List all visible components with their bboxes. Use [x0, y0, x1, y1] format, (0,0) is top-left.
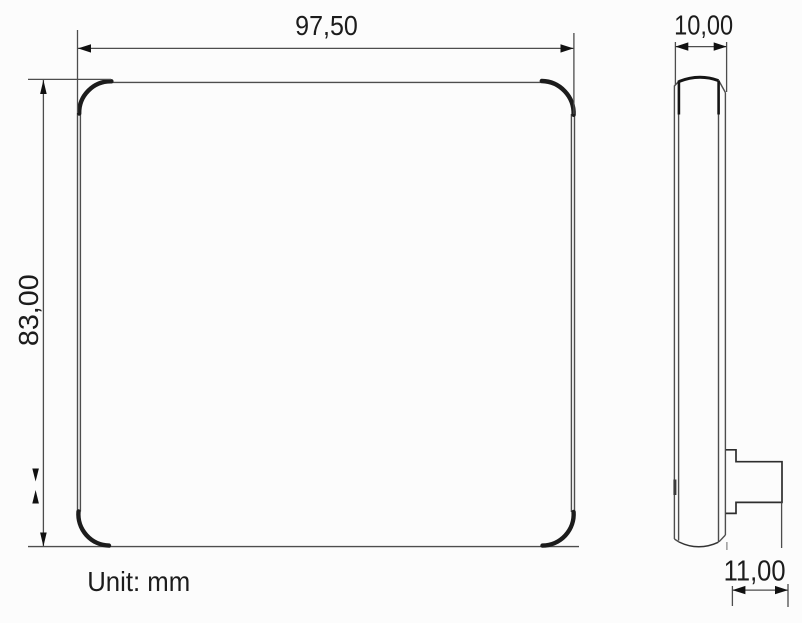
svg-text:83,00: 83,00 [13, 274, 44, 346]
svg-text:10,00: 10,00 [674, 9, 733, 40]
svg-text:11,00: 11,00 [724, 556, 786, 588]
svg-text:Unit: mm: Unit: mm [87, 566, 190, 597]
svg-text:97,50: 97,50 [295, 10, 358, 41]
